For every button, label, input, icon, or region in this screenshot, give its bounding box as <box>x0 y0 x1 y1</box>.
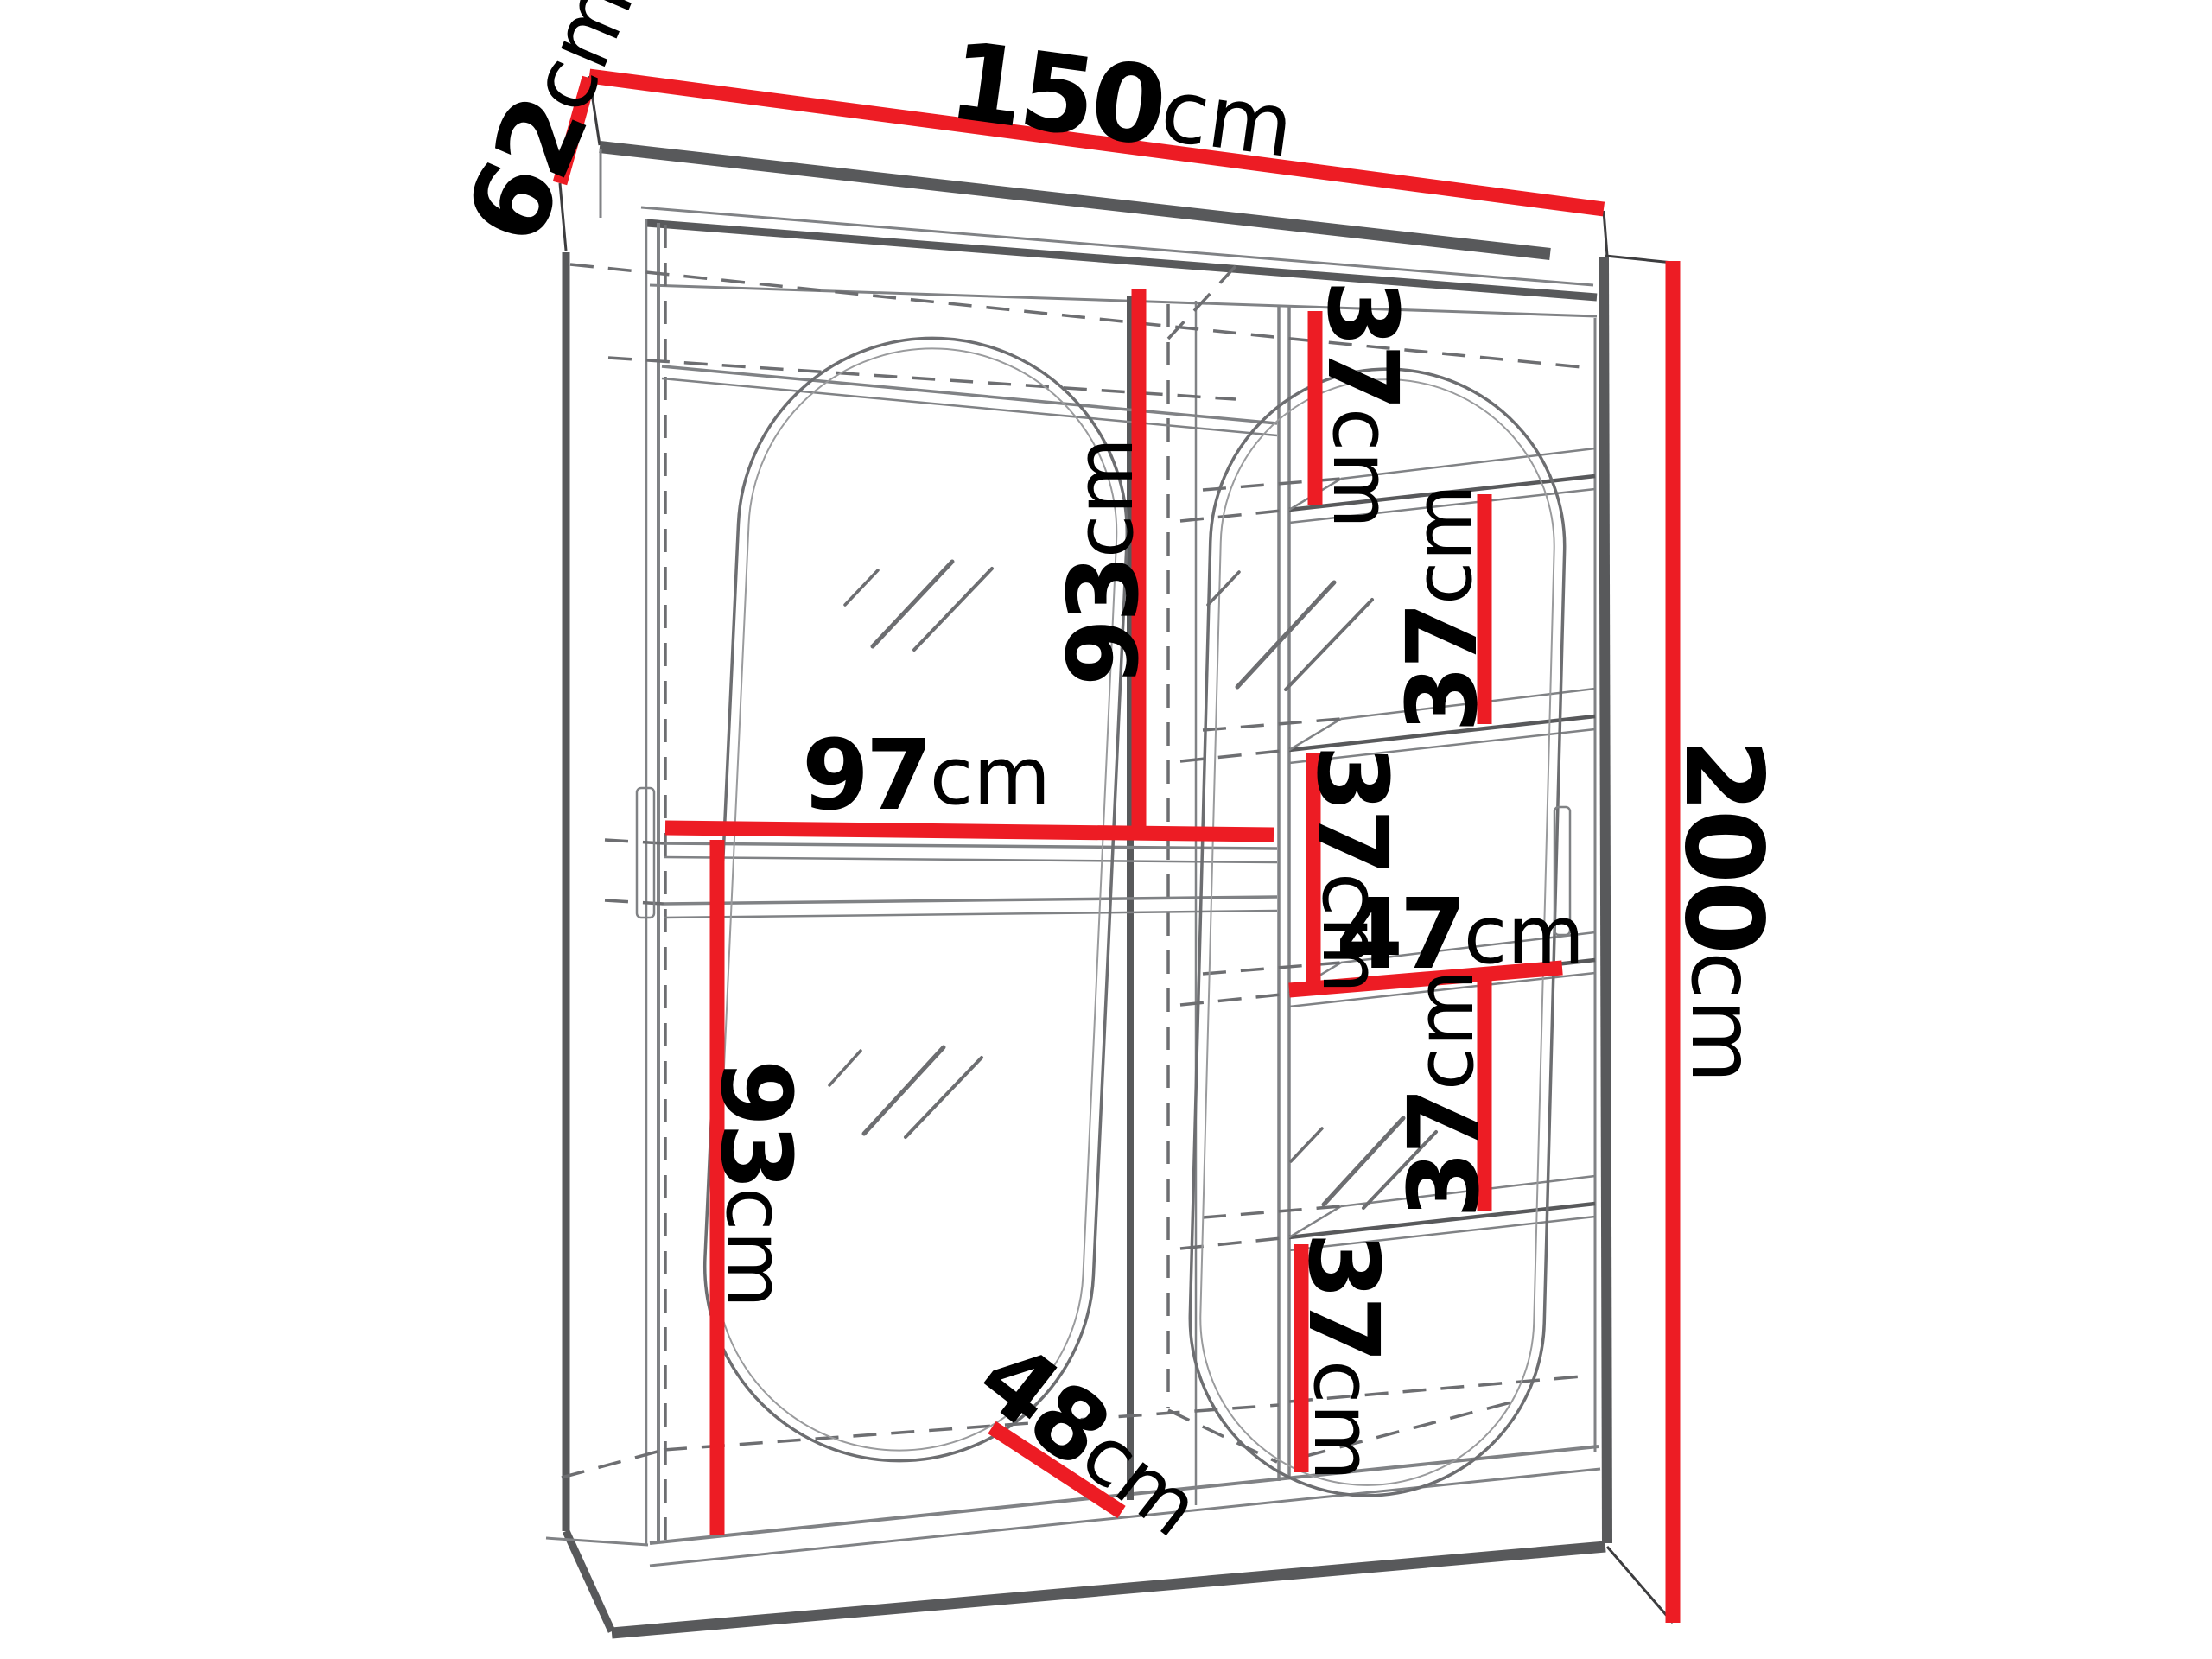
dim-label-hanging-width: 97cm <box>802 720 1051 832</box>
top-hanging-rail-line <box>662 378 1277 435</box>
right-front-edge <box>1604 257 1607 1543</box>
right-back-corner-edge <box>1604 211 1607 256</box>
top-front-edge <box>600 147 1550 254</box>
dim-label-plinth-depth: 48cm <box>957 1320 1223 1562</box>
lower-hanging-rail-line <box>664 911 1277 918</box>
dim-label-shelf-spacing-2: 37cm <box>1387 484 1499 733</box>
dim-label-shelf-spacing-4: 37cm <box>1389 969 1501 1218</box>
left-mirror-shine-bottom <box>829 1047 982 1137</box>
dimension-labels: 150cm 62cm 200cm 97cm 93cm 93cm 47cm 37c… <box>442 0 1785 1562</box>
dim-label-hanging-top-height: 93cm <box>1048 437 1160 686</box>
middle-panel-front <box>664 857 1277 862</box>
floor-left-depth-hidden <box>562 1450 664 1478</box>
lower-hanging-rail <box>664 897 1277 904</box>
dim-label-height: 200cm <box>1661 738 1785 1083</box>
divider-bottom-depth-hidden <box>1168 1410 1277 1462</box>
dim-label-shelf-spacing-3: 37cm <box>1295 745 1408 994</box>
dim-label-depth: 62cm <box>442 0 664 261</box>
middle-panel-top <box>664 843 1277 849</box>
left-bottom-corner-edge <box>566 1531 612 1631</box>
dim-label-width: 150cm <box>943 19 1301 188</box>
dim-label-hanging-bottom-height: 93cm <box>699 1059 811 1308</box>
wardrobe-dimension-diagram: 150cm 62cm 200cm 97cm 93cm 93cm 47cm 37c… <box>0 0 2212 1659</box>
left-bottom-joint <box>546 1538 648 1545</box>
dim-label-shelf-spacing-5: 37cm <box>1287 1232 1399 1481</box>
right-panel-top-edge <box>1605 256 1673 263</box>
top-frame-inner-edge <box>646 223 1597 297</box>
right-panel-bottom-edge <box>1607 1547 1673 1623</box>
dim-line-hanging-width <box>665 828 1274 835</box>
left-mirror-shine-top <box>845 562 992 650</box>
base-shadow-edge <box>612 1547 1605 1633</box>
